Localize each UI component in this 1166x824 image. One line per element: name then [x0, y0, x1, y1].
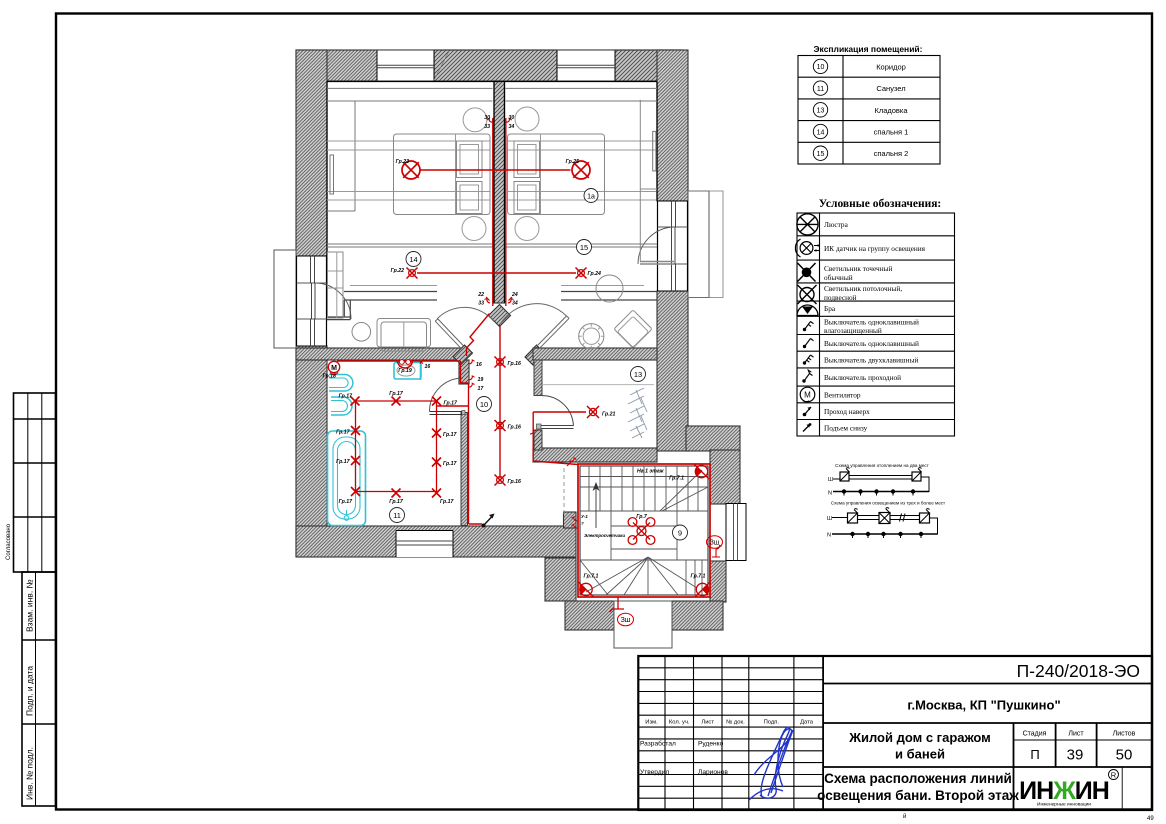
svg-text:Санузел: Санузел [876, 84, 905, 93]
svg-text:Гр.18: Гр.18 [323, 374, 337, 380]
svg-text:Гр.16: Гр.16 [508, 425, 522, 431]
svg-text:13: 13 [817, 108, 825, 115]
svg-text:Взам. инв. №: Взам. инв. № [25, 579, 35, 632]
svg-text:Руденко: Руденко [698, 741, 724, 748]
svg-text:Гр.16: Гр.16 [508, 479, 522, 485]
svg-text:15: 15 [817, 151, 825, 158]
svg-text:Кладовка: Кладовка [874, 106, 908, 115]
svg-text:и баней: и баней [895, 747, 945, 762]
svg-text:49: 49 [1147, 816, 1154, 822]
svg-text:M: M [331, 365, 337, 372]
svg-text:33: 33 [478, 301, 484, 307]
svg-text:39: 39 [1067, 747, 1084, 764]
svg-text:Зш: Зш [710, 540, 720, 547]
svg-text:ИНЖИН: ИНЖИН [1019, 777, 1109, 805]
svg-text:Гр.17: Гр.17 [389, 391, 404, 397]
svg-text:14: 14 [409, 255, 417, 264]
svg-text:Выключатель двухклавишный: Выключатель двухклавишный [824, 356, 918, 365]
svg-text:ИК датчик на группу освещения: ИК датчик на группу освещения [824, 244, 926, 253]
svg-text:Жилой дом с гаражом: Жилой дом с гаражом [848, 730, 991, 745]
svg-text:Зш: Зш [621, 617, 631, 624]
svg-text:Гр.7: Гр.7 [636, 514, 648, 520]
svg-text:Выключатель проходной: Выключатель проходной [824, 373, 901, 382]
svg-text:Ларионов: Ларионов [698, 769, 728, 776]
svg-text:22: 22 [477, 292, 484, 298]
svg-text:1а: 1а [587, 193, 595, 200]
svg-text:Гр.19: Гр.19 [398, 368, 412, 374]
svg-text:У-1: У-1 [581, 514, 588, 519]
svg-text:50: 50 [1116, 747, 1133, 764]
svg-text:Гр.21: Гр.21 [602, 412, 616, 418]
svg-text:Гр.24: Гр.24 [588, 271, 602, 277]
svg-text:11: 11 [817, 86, 824, 93]
svg-text:г.Москва, КП "Пушкино": г.Москва, КП "Пушкино" [907, 698, 1060, 713]
svg-text:30: 30 [484, 115, 490, 121]
svg-text:На 1 этаж: На 1 этаж [637, 469, 665, 475]
svg-text:Лист: Лист [1068, 731, 1084, 738]
svg-text:Гр.17: Гр.17 [339, 499, 354, 505]
svg-text:Схема управления отоплением на: Схема управления отоплением на два мест [835, 463, 930, 468]
svg-text:?: ? [581, 521, 584, 526]
svg-text:спальня 1: спальня 1 [874, 128, 909, 137]
svg-text:Утвердил: Утвердил [640, 769, 669, 776]
svg-text:влагозащищенный: влагозащищенный [824, 326, 882, 335]
svg-text:Листов: Листов [1113, 731, 1136, 738]
svg-text:освещения бани. Второй этаж: освещения бани. Второй этаж [817, 788, 1019, 803]
svg-text:Подп.: Подп. [764, 719, 780, 725]
svg-text:обычный: обычный [824, 273, 853, 282]
svg-text:Изм.: Изм. [645, 719, 658, 725]
svg-text:й: й [903, 813, 906, 820]
svg-text:№ док.: № док. [726, 719, 745, 725]
svg-text:Схема расположения линий: Схема расположения линий [824, 771, 1012, 786]
svg-text:R: R [1111, 771, 1117, 780]
svg-text:Подъем снизу: Подъем снизу [824, 424, 868, 433]
svg-text:Ш: Ш [827, 516, 832, 522]
svg-text:Экспликация помещений:: Экспликация помещений: [814, 44, 923, 54]
svg-text:Гр.17: Гр.17 [339, 394, 354, 400]
svg-text:Условные обозначения:: Условные обозначения: [819, 198, 942, 210]
svg-text:Дата: Дата [800, 719, 814, 725]
svg-text:15: 15 [580, 243, 588, 252]
svg-text:Проход наверх: Проход наверх [824, 407, 870, 416]
svg-text:Светильник потолочный,: Светильник потолочный, [824, 284, 902, 293]
svg-text:Согласовано: Согласовано [6, 523, 12, 560]
svg-text:Разработал: Разработал [640, 740, 676, 748]
svg-text:N: N [828, 491, 832, 497]
svg-text:Инв. № подл.: Инв. № подл. [25, 747, 35, 800]
svg-text:Гр.17: Гр.17 [443, 432, 458, 438]
svg-text:П: П [1030, 747, 1039, 762]
svg-text:Гр.17: Гр.17 [443, 461, 458, 467]
svg-text:подвесной: подвесной [824, 293, 857, 302]
svg-text:Ш: Ш [828, 477, 833, 483]
svg-text:13: 13 [634, 370, 642, 379]
svg-text:Люстра: Люстра [824, 220, 849, 229]
svg-text:Гр.17: Гр.17 [389, 499, 404, 505]
svg-text:10: 10 [817, 64, 825, 71]
svg-text:Схема управления освещением из: Схема управления освещением из трех и бо… [831, 501, 946, 506]
svg-text:10: 10 [480, 400, 488, 409]
svg-text:Выключатель одноклавишный: Выключатель одноклавишный [824, 339, 919, 348]
svg-text:11: 11 [393, 511, 401, 520]
svg-text:Гр.7.1: Гр.7.1 [584, 574, 599, 580]
svg-text:16: 16 [425, 364, 431, 370]
svg-text:Гр.16: Гр.16 [508, 361, 522, 367]
svg-text:Гр.7.1: Гр.7.1 [669, 476, 684, 482]
svg-text:Гр.25: Гр.25 [566, 159, 580, 165]
svg-text:Инженерные инновации: Инженерные инновации [1037, 802, 1091, 808]
svg-text:Вентилятор: Вентилятор [824, 391, 861, 400]
svg-text:Светильник точечный: Светильник точечный [824, 264, 893, 273]
svg-text:Гр.17: Гр.17 [444, 401, 459, 407]
svg-text:M: M [804, 391, 811, 400]
svg-text:30: 30 [509, 115, 515, 121]
svg-text:Гр.17: Гр.17 [336, 430, 351, 436]
svg-text:19: 19 [478, 377, 484, 383]
svg-text:14: 14 [817, 129, 825, 136]
svg-text:34: 34 [509, 124, 515, 130]
svg-text:Стадия: Стадия [1023, 731, 1047, 738]
svg-text:Гр.17: Гр.17 [440, 499, 455, 505]
svg-text:33: 33 [484, 124, 490, 130]
svg-text:Коридор: Коридор [876, 62, 906, 71]
svg-text:Гр.22: Гр.22 [391, 268, 405, 274]
svg-text:24: 24 [511, 292, 518, 298]
svg-text:9: 9 [678, 529, 682, 538]
svg-text:Кол. уч.: Кол. уч. [669, 719, 690, 725]
svg-text:П-240/2018-ЭО: П-240/2018-ЭО [1017, 661, 1140, 681]
svg-text:Электросчетчики: Электросчетчики [584, 533, 625, 538]
svg-text:34: 34 [512, 301, 518, 307]
svg-text:Подп. и дата: Подп. и дата [25, 666, 35, 716]
svg-text:Гр.23: Гр.23 [396, 159, 410, 165]
svg-text:N: N [827, 533, 831, 539]
svg-text:спальня 2: спальня 2 [874, 149, 909, 158]
svg-text:Гр.17: Гр.17 [336, 459, 351, 465]
svg-text:Бра: Бра [824, 304, 836, 313]
svg-text:Гр.7.1: Гр.7.1 [691, 574, 706, 580]
svg-text:16: 16 [476, 362, 482, 368]
svg-text:Лист: Лист [701, 719, 714, 725]
